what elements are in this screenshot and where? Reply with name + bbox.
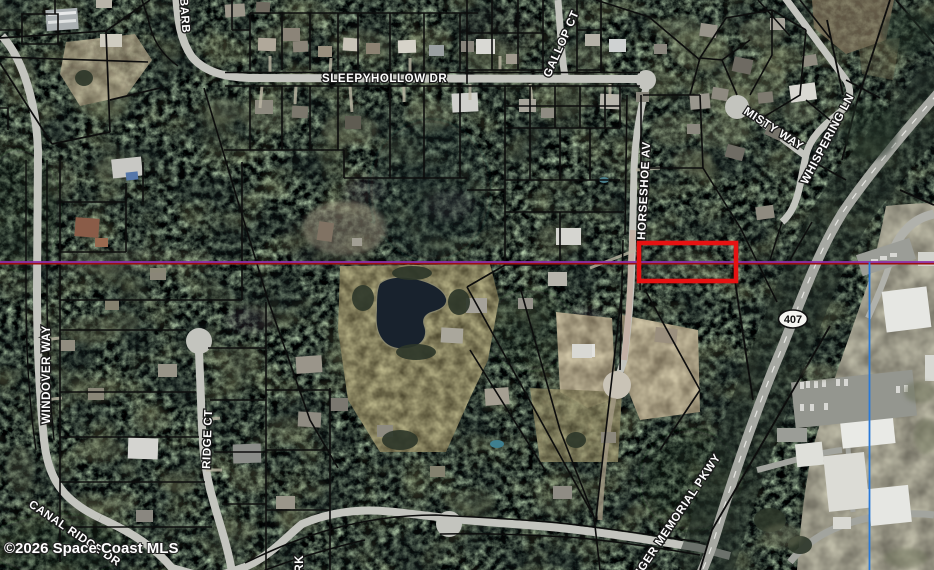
svg-text:PARK: PARK [294, 555, 306, 570]
svg-text:BARB: BARB [177, 0, 191, 34]
svg-text:RIDGE CT: RIDGE CT [201, 409, 215, 469]
svg-text:407: 407 [784, 314, 802, 326]
svg-text:SLEEPYHOLLOW DR: SLEEPYHOLLOW DR [322, 73, 447, 85]
svg-text:©2026 Space Coast MLS: ©2026 Space Coast MLS [4, 540, 178, 557]
svg-text:WINDOVER WAY: WINDOVER WAY [41, 325, 53, 424]
